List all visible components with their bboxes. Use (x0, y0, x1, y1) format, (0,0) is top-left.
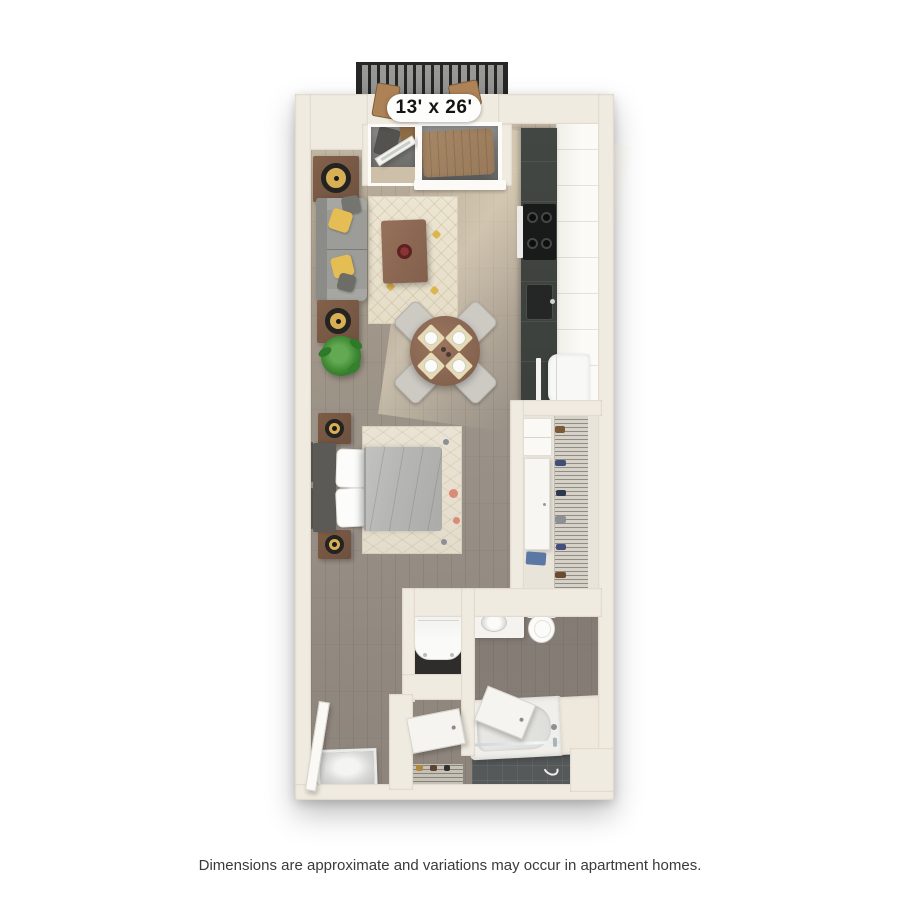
wall-nook-left (389, 694, 413, 790)
centerpiece-icon (441, 347, 446, 352)
window (418, 122, 502, 184)
door-threshold (371, 167, 415, 183)
shoe-item (444, 765, 450, 771)
closet-shelf-box (522, 418, 552, 456)
rug-accent (441, 539, 447, 545)
entry-door-mat (316, 748, 377, 789)
tub-faucet-icon (551, 724, 557, 730)
plate-icon (421, 356, 441, 376)
window-sill (414, 180, 506, 190)
wall-right (598, 94, 614, 800)
place-setting (417, 352, 445, 380)
closet-item (555, 572, 566, 578)
floor-plan-image: 13' x 26' Dimensions are approximate and… (0, 0, 900, 900)
coffee-table (381, 219, 428, 284)
washer-dryer (414, 611, 463, 660)
lamp-finial-icon (336, 319, 341, 324)
sofa-cushion-line (327, 249, 367, 250)
rug-accent (432, 230, 442, 240)
burner-icon (541, 238, 552, 249)
plate-icon (421, 328, 441, 348)
lamp-finial-icon (334, 176, 339, 181)
fridge-door-line (556, 356, 557, 402)
wall-bottom (295, 784, 614, 800)
closet-wire-shelving (554, 412, 588, 604)
refrigerator (548, 354, 590, 404)
shoe-item (430, 765, 437, 771)
glass-door-handle-icon (553, 738, 557, 747)
lamp-finial-icon (332, 426, 337, 431)
bed-headboard (313, 443, 336, 532)
rug-accent (449, 489, 458, 498)
table-lamp-icon (325, 419, 344, 438)
vase-icon (397, 244, 413, 260)
plate-icon (449, 328, 469, 348)
sofa-back (316, 198, 327, 301)
panel-handle-icon (543, 503, 546, 506)
closet-clothes-item (526, 551, 547, 565)
toilet-seat-line (534, 620, 551, 638)
burner-icon (527, 238, 538, 249)
rug-accent (453, 517, 460, 524)
table-lamp-icon (321, 163, 351, 193)
rug-accent (430, 286, 440, 296)
closet-item (555, 426, 565, 433)
door-handle-icon (519, 717, 524, 722)
wall-closet-left (510, 400, 524, 617)
rug-accent (443, 439, 449, 445)
faucet-icon (550, 299, 555, 304)
lamp-finial-icon (332, 542, 337, 547)
washer-foot-icon (450, 653, 454, 657)
closet-item (555, 516, 566, 523)
washer-lid-line (418, 620, 459, 621)
closet-item (556, 490, 566, 496)
nightstand (318, 413, 351, 444)
closet-sliding-panel (524, 458, 550, 550)
shoe-item (416, 765, 423, 771)
door-handle-icon (451, 725, 456, 730)
potted-plant-icon (321, 336, 361, 376)
bed-duvet (364, 447, 442, 531)
cooktop (523, 204, 556, 260)
place-setting (445, 324, 473, 352)
washer-foot-icon (423, 653, 427, 657)
wall-left (295, 94, 311, 800)
sofa (316, 198, 367, 301)
tub-ledge-halfwall (559, 695, 604, 755)
dishwasher-front (536, 358, 541, 402)
plate-icon (449, 356, 469, 376)
nightstand (318, 530, 351, 559)
disclaimer-text: Dimensions are approximate and variation… (0, 857, 900, 874)
shelf-divider-line (523, 437, 551, 438)
closet-item (556, 544, 566, 550)
kitchen-sink (526, 284, 553, 320)
closet-item (555, 460, 566, 466)
centerpiece-icon (446, 352, 451, 357)
toilet-bowl (528, 614, 555, 643)
table-lamp-icon (325, 535, 344, 554)
dining-table (410, 316, 480, 386)
burner-icon (527, 212, 538, 223)
wall-bath-corner (570, 748, 614, 792)
wall-top-right (498, 94, 614, 124)
wall-bathroom-top (402, 588, 602, 617)
dimensions-label: 13' x 26' (387, 94, 481, 122)
burner-icon (541, 212, 552, 223)
table-lamp-icon (325, 308, 351, 334)
